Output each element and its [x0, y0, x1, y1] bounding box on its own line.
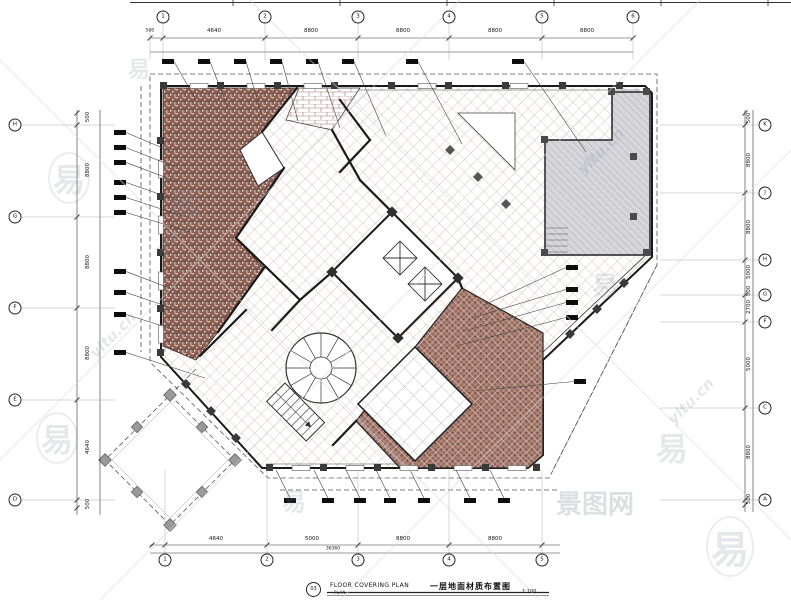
- top-edge-artifact: [130, 0, 791, 6]
- grid-bubble: G: [759, 289, 772, 302]
- dim-label: 500: [746, 286, 752, 297]
- grid-bubble: G: [9, 211, 22, 224]
- dim-label: 8800: [488, 28, 502, 34]
- dim-label: 5000: [746, 265, 752, 279]
- title-underline: [327, 593, 549, 596]
- grid-bubble: 3: [352, 11, 365, 24]
- dim-label: 8800: [85, 346, 91, 360]
- drawing-title-en: FLOOR COVERING PLAN: [330, 582, 409, 589]
- dim-label: 8800: [580, 28, 594, 34]
- dim-label: 2700: [746, 300, 752, 314]
- spiral-stair: [286, 333, 356, 403]
- dim-total-label: 36360: [326, 547, 340, 552]
- floor-plan-drawing: [0, 0, 791, 600]
- dim-label: 500: [85, 112, 91, 123]
- dim-label: 8800: [746, 153, 752, 167]
- dim-label: 8800: [396, 536, 410, 542]
- dim-label: 500: [746, 113, 752, 124]
- dim-label: 8800: [488, 536, 502, 542]
- grid-bubble: D: [9, 494, 22, 507]
- grid-bubble: J: [759, 187, 772, 200]
- grid-bubble: F: [759, 316, 772, 329]
- grid-bubble: H: [9, 119, 22, 132]
- grid-bubble: 1: [157, 11, 170, 24]
- grid-bubble: 6: [627, 11, 640, 24]
- grid-bubble: 2: [261, 554, 274, 567]
- grid-bubble: 4: [443, 554, 456, 567]
- dim-label: 5000: [746, 357, 752, 371]
- drawing-title-en-sub: PLAN: [334, 590, 346, 595]
- dim-label: 4640: [207, 28, 221, 34]
- dim-label: 8800: [85, 255, 91, 269]
- grid-bubble: H: [759, 254, 772, 267]
- dim-label: 500: [85, 499, 91, 510]
- grid-bubble: 5: [536, 554, 549, 567]
- dim-label: 500: [746, 494, 752, 505]
- grid-bubble: F: [9, 302, 22, 315]
- dim-label: 4640: [209, 536, 223, 542]
- grid-bubble: 2: [259, 11, 272, 24]
- dim-label: 500: [146, 29, 155, 34]
- grid-bubble: 4: [443, 11, 456, 24]
- grid-bubble: C: [759, 402, 772, 415]
- grid-bubble: 1: [159, 554, 172, 567]
- dim-label: 8800: [85, 163, 91, 177]
- dim-label: 5000: [305, 536, 319, 542]
- dim-label: 8800: [746, 445, 752, 459]
- grid-bubble: K: [759, 119, 772, 132]
- dim-label: 8800: [396, 28, 410, 34]
- drawing-scale: 1:100: [522, 589, 536, 595]
- drawing-title-cn: 一层地面材质布置图: [430, 581, 511, 592]
- sheet-number-bubble: 03: [306, 582, 321, 597]
- dim-label: 8800: [746, 220, 752, 234]
- dim-label: 8800: [304, 28, 318, 34]
- floor-plan-sheet: 1 2 3 4 5 6 1 2 3 4 5 H G F E D K J H G …: [0, 0, 791, 600]
- grid-bubble: 5: [536, 11, 549, 24]
- grid-bubble: 3: [352, 554, 365, 567]
- dim-label: 4640: [85, 440, 91, 454]
- grid-bubble: A: [759, 494, 772, 507]
- grid-bubble: E: [9, 394, 22, 407]
